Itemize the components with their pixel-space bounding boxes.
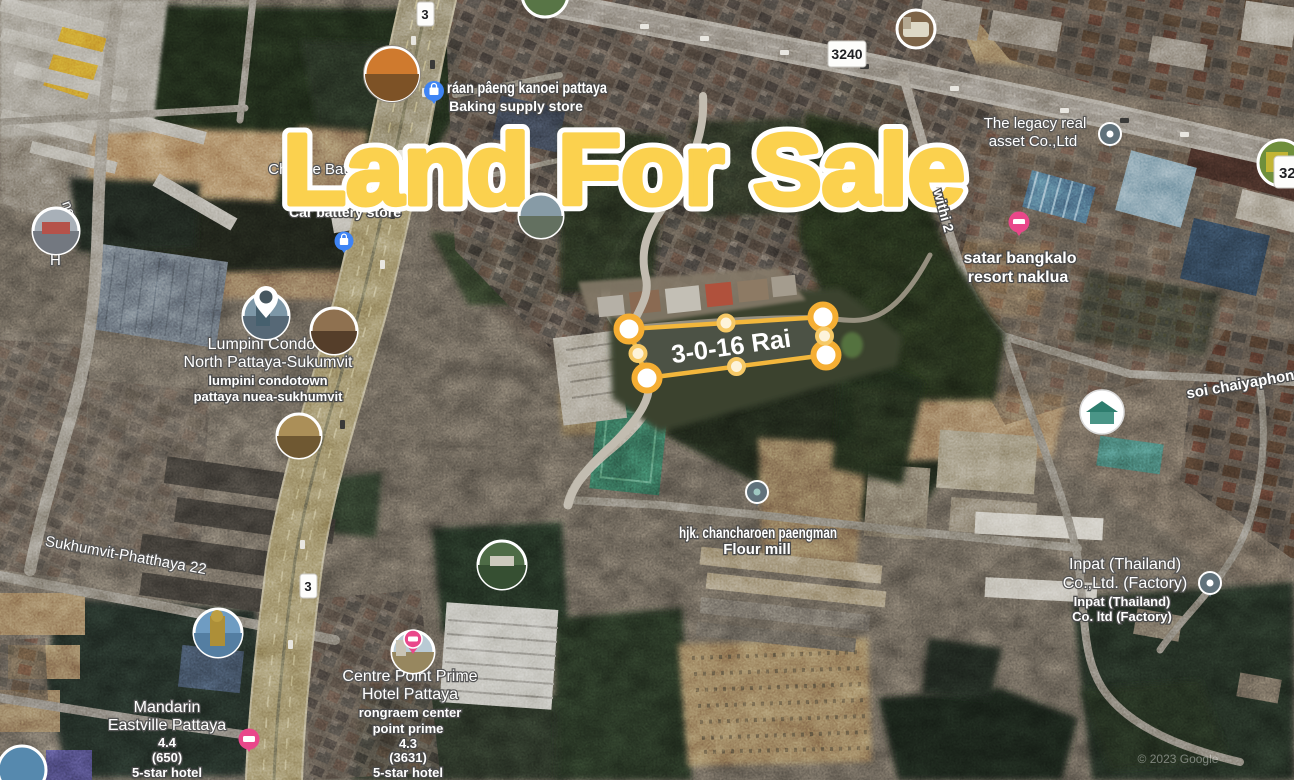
svg-text:3240: 3240 (831, 46, 862, 62)
svg-text:point prime: point prime (373, 721, 444, 736)
svg-text:North Pattaya-Sukumvit: North Pattaya-Sukumvit (184, 354, 354, 371)
svg-text:Land For Sale: Land For Sale (283, 114, 965, 226)
svg-text:satar bangkalo: satar bangkalo (964, 250, 1077, 267)
svg-text:Inpat (Thailand): Inpat (Thailand) (1074, 594, 1171, 609)
svg-text:(3631): (3631) (389, 750, 427, 765)
svg-text:5-star hotel: 5-star hotel (132, 765, 202, 780)
svg-text:Co.,Ltd. (Factory): Co.,Ltd. (Factory) (1063, 575, 1187, 592)
svg-text:hjk. chancharoen paengman: hjk. chancharoen paengman (679, 525, 837, 542)
svg-text:lumpini condotown: lumpini condotown (208, 373, 327, 388)
svg-text:asset Co.,Ltd: asset Co.,Ltd (989, 133, 1077, 150)
svg-text:Eastville Pattaya: Eastville Pattaya (108, 717, 226, 734)
svg-text:4.3: 4.3 (399, 736, 417, 751)
svg-text:resort naklua: resort naklua (968, 269, 1069, 286)
svg-text:Hotel Pattaya: Hotel Pattaya (362, 686, 458, 703)
svg-text:Flour mill: Flour mill (723, 541, 791, 558)
svg-text:Mandarin: Mandarin (134, 699, 201, 716)
svg-text:(650): (650) (152, 750, 182, 765)
svg-text:Inpat (Thailand): Inpat (Thailand) (1069, 556, 1181, 573)
svg-text:3: 3 (421, 7, 428, 22)
svg-text:rongraem center: rongraem center (359, 705, 462, 720)
svg-text:4.4: 4.4 (158, 735, 177, 750)
svg-text:© 2023 Google: © 2023 Google (1138, 752, 1219, 766)
svg-text:pattaya nuea-sukhumvit: pattaya nuea-sukhumvit (194, 389, 343, 404)
svg-text:Co. ltd (Factory): Co. ltd (Factory) (1072, 609, 1172, 624)
svg-text:3: 3 (304, 579, 311, 594)
svg-text:The legacy real: The legacy real (984, 115, 1087, 132)
svg-text:ráan pâeng kanoei pattaya: ráan pâeng kanoei pattaya (447, 80, 607, 97)
svg-text:Baking supply store: Baking supply store (449, 98, 583, 114)
svg-text:5-star hotel: 5-star hotel (373, 765, 443, 780)
svg-text:32: 32 (1279, 165, 1294, 182)
